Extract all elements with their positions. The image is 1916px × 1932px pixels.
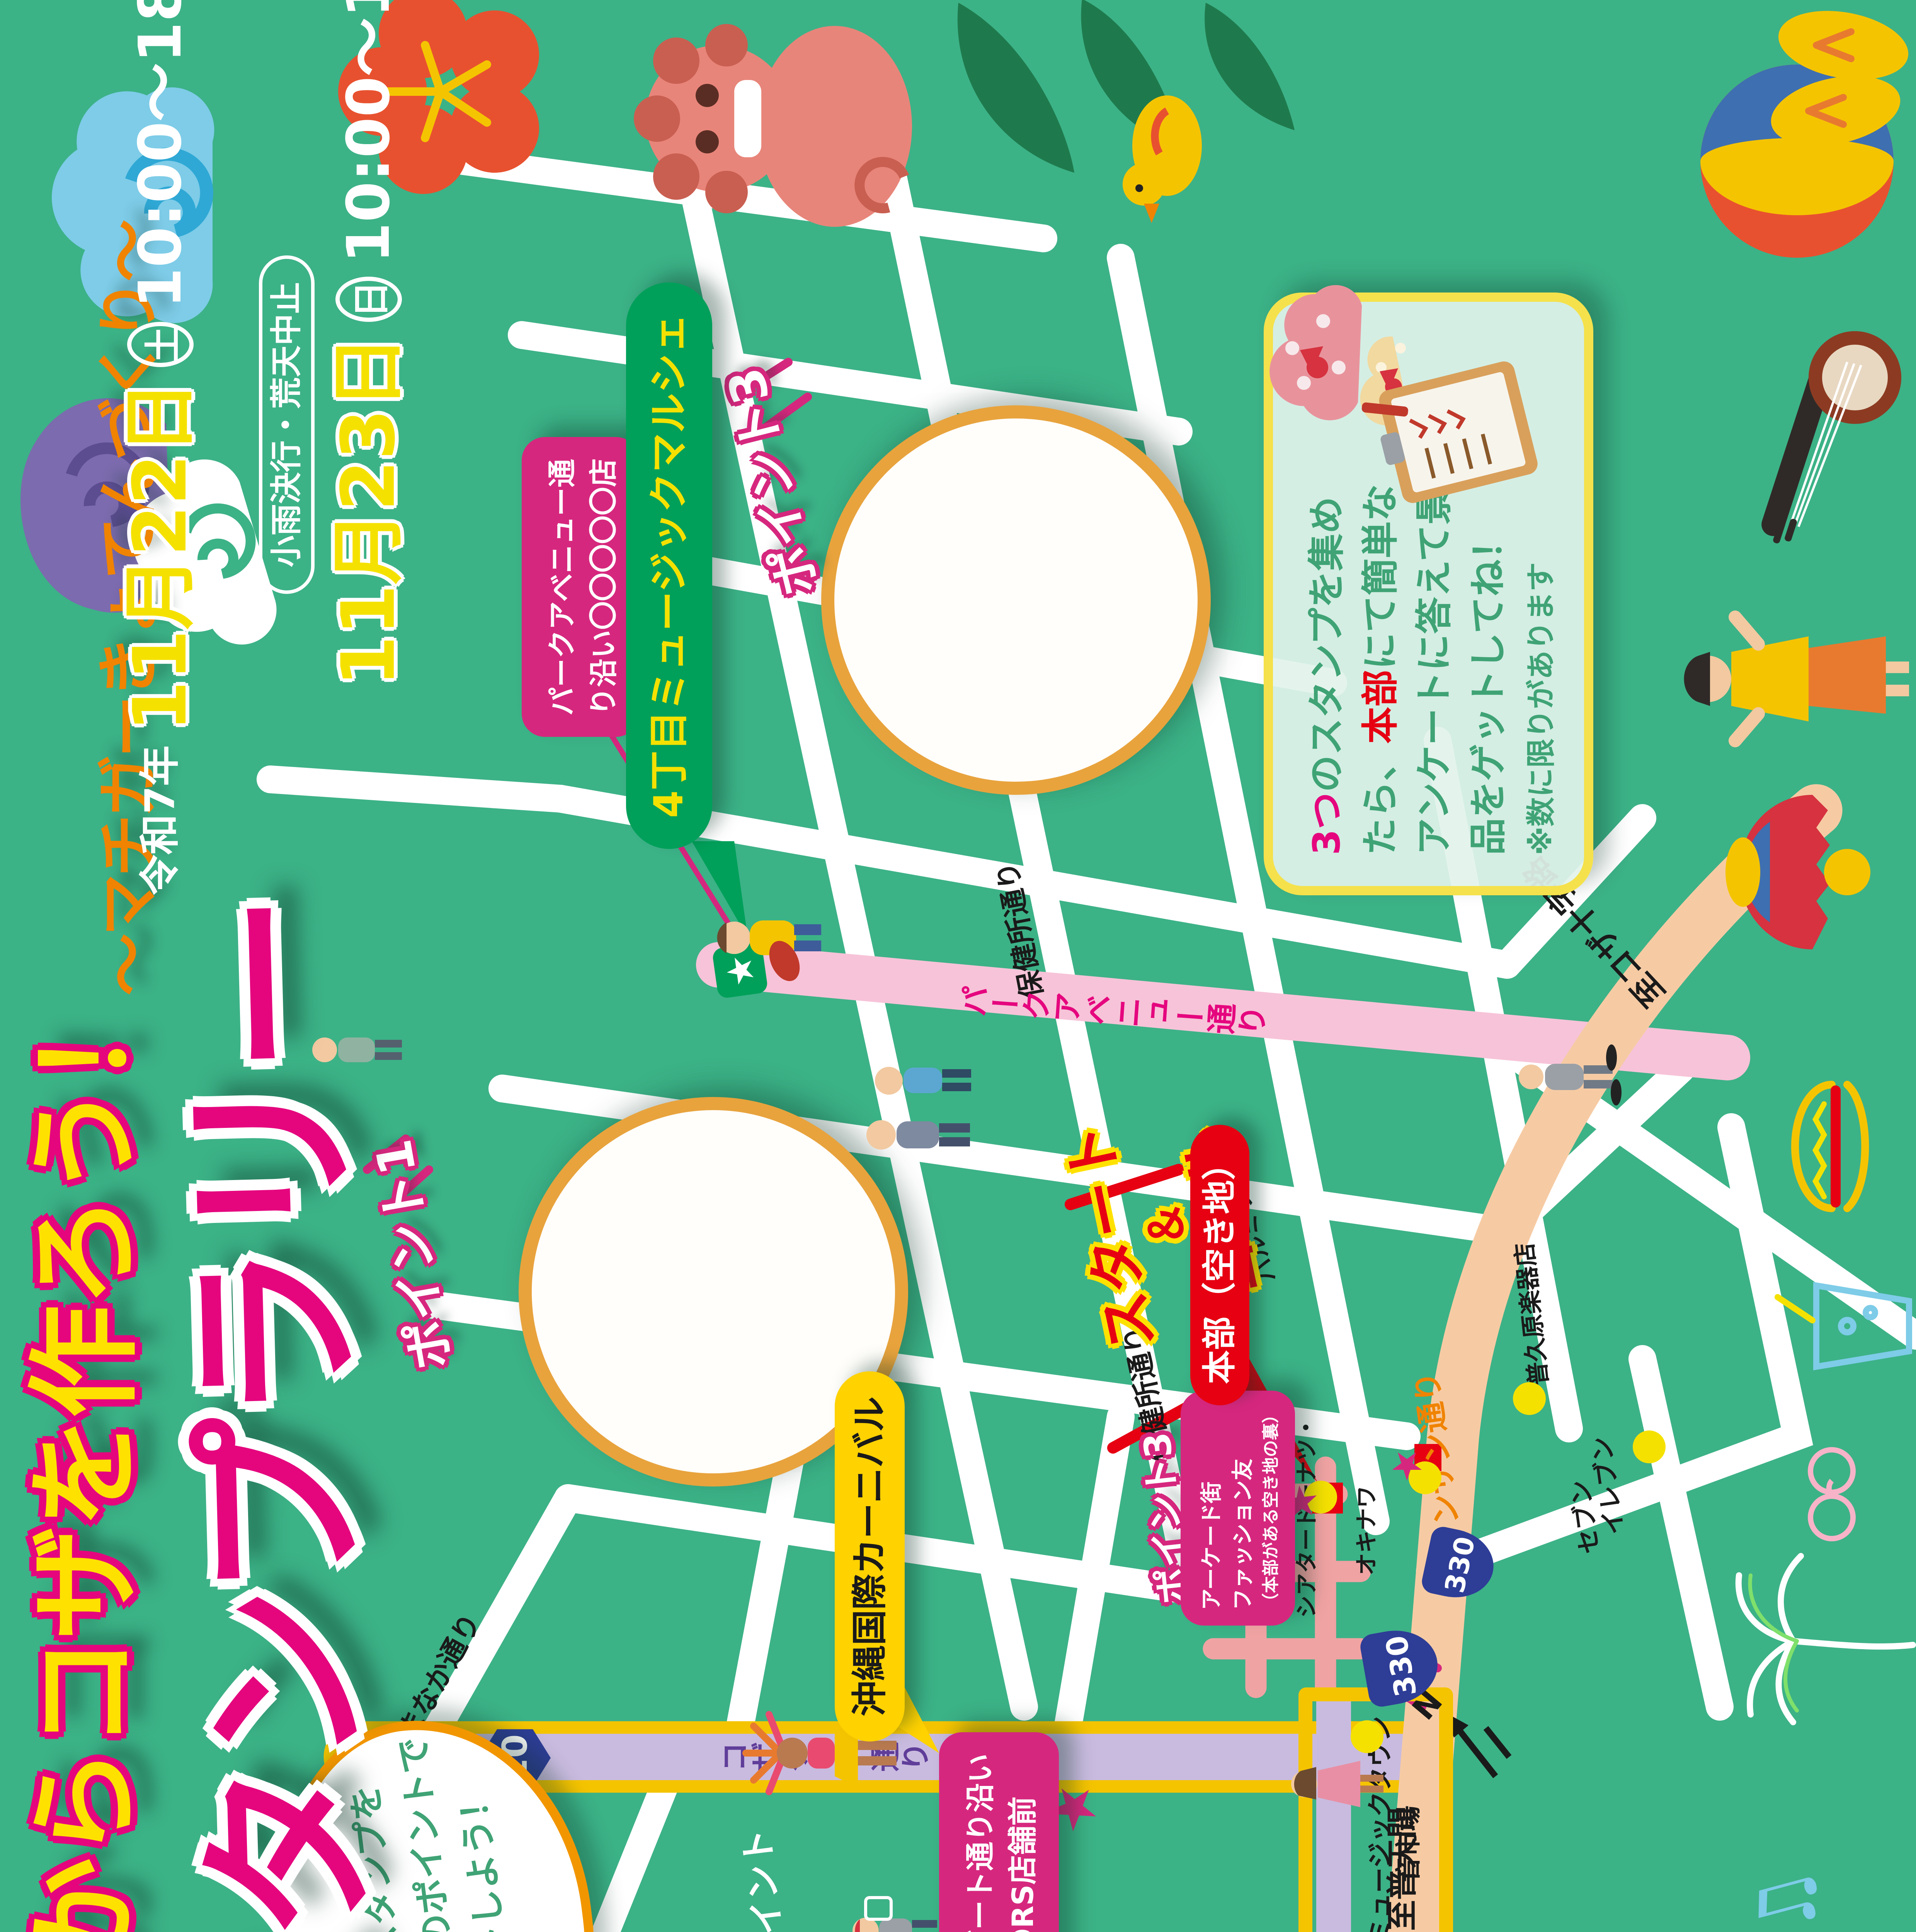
musician-icon	[711, 888, 827, 988]
place-label-theater-2: オキナワ	[1354, 1486, 1379, 1575]
info-box: 3つのスタンプを集めたら、本部にて簡単なアンケートに答えて景品をゲットしてね！ …	[1264, 293, 1593, 895]
hanagasa-hat-icon	[1685, 772, 1901, 973]
direction-label-futenma: 至普天間	[1385, 1807, 1419, 1931]
date-row-2: 11月23日 日 10:00〜16:00	[328, 7, 409, 687]
sanshin-icon	[1693, 323, 1916, 563]
time-1: 10:00〜18:00	[128, 0, 192, 308]
poster-page: 空き地からコザを作ろう！ 〜マチガーきょてんづくり〜 スタンプラリー 令和7年 …	[0, 0, 1916, 1932]
glasses-neon-icon	[1785, 1444, 1882, 1544]
road-330	[1399, 810, 1816, 1932]
shisa-icon	[618, 0, 927, 254]
walker-bottomright-icon	[1515, 1034, 1623, 1119]
date-2: 11月23日	[328, 335, 409, 687]
stamp-circle-point3	[821, 405, 1211, 795]
day-circle-2: 日	[335, 277, 402, 322]
drink-neon-icon	[1770, 1262, 1916, 1390]
hotdog-neon-icon	[1754, 1069, 1882, 1224]
date-1: 11月22日	[120, 381, 201, 732]
marche-badge: 4丁目ミュージックマルシェ	[626, 282, 712, 849]
walking-couple-icon	[862, 1038, 989, 1170]
title-main: スタンプラリー	[166, 897, 397, 1932]
date-block: 令和7年 11月22日 土 10:00〜18:00 小雨決行・荒天中止 11月2…	[120, 7, 409, 895]
point3-bubble: アーケード街ファッション友 （本部がある空き地の裏）	[1181, 1391, 1295, 1626]
palm-bird-icon	[927, 0, 1333, 227]
odori-dancer-icon	[1666, 586, 1913, 772]
pink-dress-woman-icon	[1287, 1742, 1387, 1827]
compass-icon	[1445, 1713, 1509, 1776]
palm-neon-icon	[1685, 1548, 1916, 1730]
poi-dot-seven	[1633, 1430, 1666, 1463]
carnival-bubble: 沖縄国際カーニバル	[835, 1371, 905, 1742]
time-2: 10:00〜16:00	[336, 0, 401, 263]
weather-note-pill: 小雨決行・荒天中止	[259, 255, 315, 594]
poster-canvas: 空き地からコザを作ろう！ 〜マチガーきょてんづくり〜 スタンプラリー 令和7年 …	[0, 0, 1916, 1932]
poi-dot-fukuhara	[1513, 1382, 1546, 1415]
hq-bubble: 本部（空き地）	[1190, 1125, 1249, 1405]
flipflops-icon	[1754, 0, 1916, 161]
info-box-text: 3つのスタンプを集めたら、本部にて簡単なアンケートに答えて景品をゲットしてね！	[1300, 476, 1515, 855]
date-row-1: 令和7年 11月22日 土 10:00〜18:00	[120, 7, 201, 895]
point2-bubble: コザゲート通り沿いGATORS店舗前	[939, 1732, 1059, 1932]
era-label: 令和7年	[138, 745, 183, 895]
title-catch: 空き地からコザを作ろう！	[23, 976, 147, 1932]
point1-bubble: パークアベニュー通り沿い〇〇〇〇〇店	[522, 437, 639, 737]
day-circle-1: 土	[127, 322, 194, 367]
